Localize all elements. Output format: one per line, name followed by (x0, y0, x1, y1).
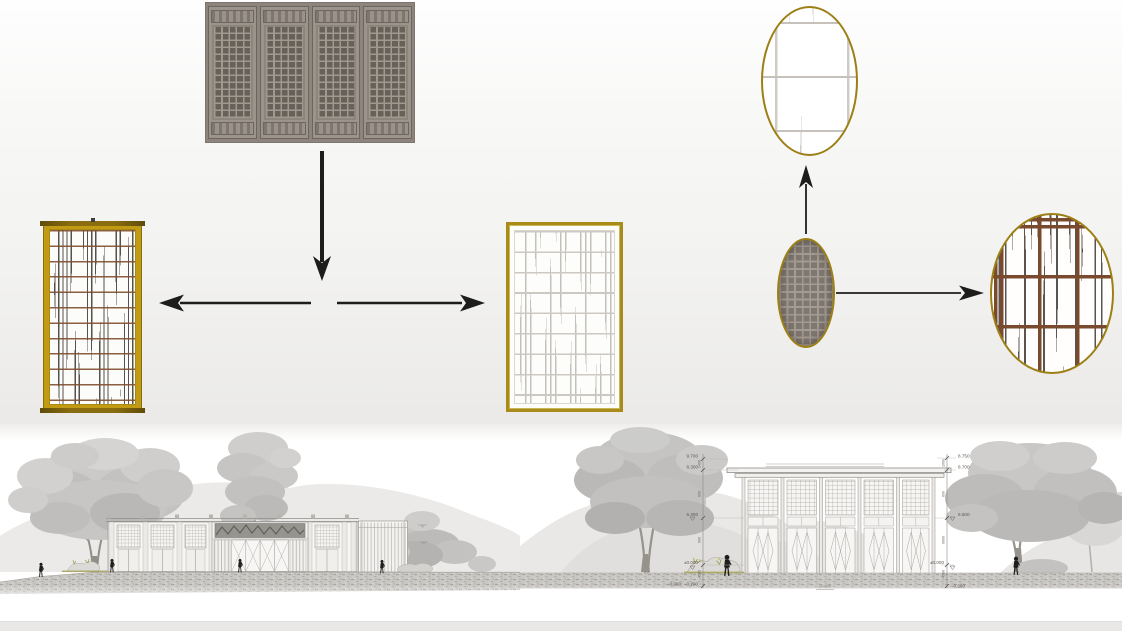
dark-lattice-detail-ellipse (990, 213, 1114, 374)
level-label: -0.200 (952, 584, 965, 589)
carved-band (263, 10, 306, 23)
carved-band (263, 122, 306, 135)
traditional-lattice-door-photo (205, 2, 415, 143)
clerestory-lattice (748, 480, 929, 515)
dim-label: 600 (698, 491, 702, 497)
dim-label: 1400 (698, 460, 702, 468)
level-label: 8.750 (958, 454, 970, 459)
lattice-grid (367, 25, 408, 120)
diamond-doors (748, 528, 929, 574)
level-label: 9.700 (687, 454, 699, 459)
door-panel (312, 6, 361, 139)
carved-band (211, 122, 254, 135)
carved-band (315, 10, 358, 23)
light-lattice-screen-panel (506, 222, 623, 412)
dim-label: 4500 (698, 570, 702, 578)
right-building-section (727, 464, 951, 577)
level-label: -0.200 (668, 582, 681, 587)
dim-label: 4500 (942, 570, 946, 578)
design-process-board: 9.700 8.300 6.300 ±0.000 -0.200 1400 600… (0, 0, 1122, 631)
center-entrance (212, 522, 308, 572)
carved-band (366, 122, 409, 135)
dim-label: 1000 (942, 459, 946, 467)
light-lattice-detail-ellipse (761, 6, 858, 156)
carved-band (315, 122, 358, 135)
dim-label: 900 (698, 537, 702, 543)
dim-label: 600 (942, 491, 946, 497)
carved-band (366, 10, 409, 23)
transom-band (748, 517, 929, 526)
dark-lattice-pattern (50, 230, 135, 404)
dark-frieze (215, 524, 305, 538)
lattice-grid (264, 25, 305, 120)
carved-band (211, 10, 254, 23)
door-panel (260, 6, 309, 139)
level-label: -0.200 (685, 582, 698, 587)
level-label: ±0.000 (684, 560, 698, 565)
lattice-grid (316, 25, 357, 120)
floor-level-mark: ±0.000 (819, 584, 832, 589)
lattice-grid (212, 25, 253, 120)
door-panel (363, 6, 412, 139)
left-building-elevation (106, 515, 428, 573)
level-label: 6.300 (687, 512, 699, 517)
elevation-drawings: 9.700 8.300 6.300 ±0.000 -0.200 1400 600… (0, 418, 1122, 631)
panel-top-nub (91, 218, 95, 222)
panel-bottom-cap (40, 408, 145, 413)
level-label: 8.700 (958, 465, 970, 470)
dim-label: 9000 (942, 536, 946, 544)
light-lattice-pattern (514, 230, 615, 404)
door-panel (208, 6, 257, 139)
dark-lattice-screen-panel (44, 224, 141, 410)
level-label: ±0.000 (930, 560, 944, 565)
level-label: 6.500 (958, 512, 970, 517)
photo-grid-detail-ellipse (777, 238, 835, 348)
